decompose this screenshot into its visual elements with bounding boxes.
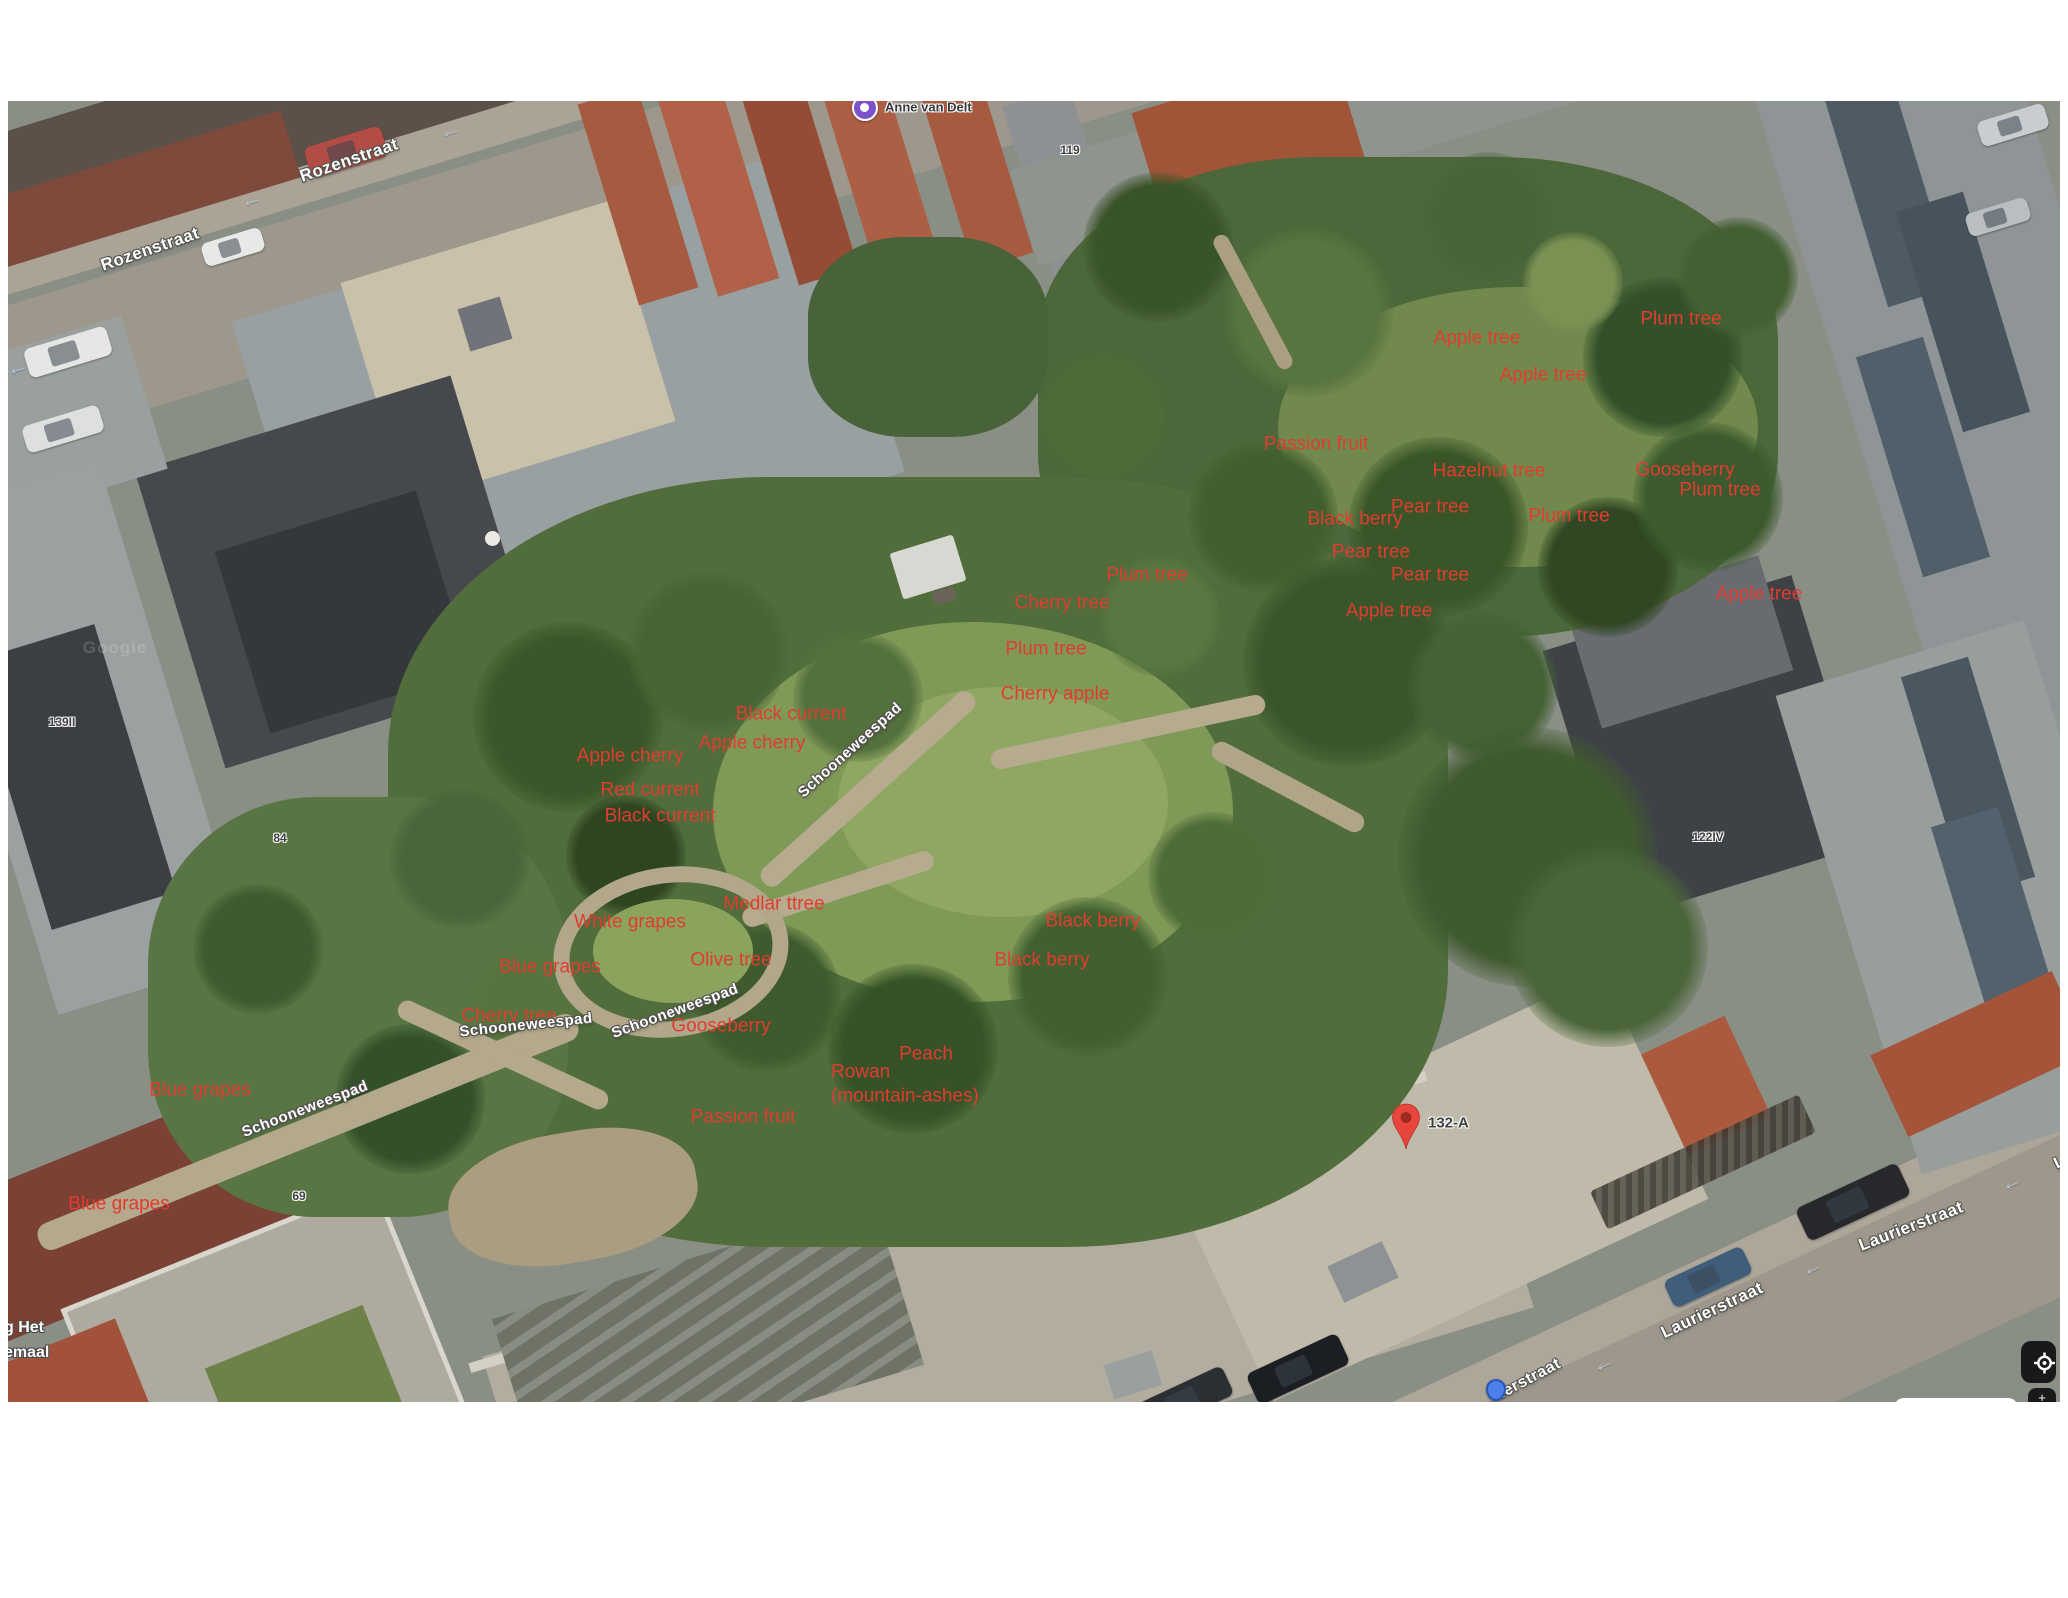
plant-label: Apple cherry (577, 747, 684, 766)
tree-canopy (1083, 172, 1233, 322)
poi-pin-glyph (860, 103, 869, 112)
plant-label: Blue grapes (68, 1195, 169, 1214)
plant-label: Passion fruit (1264, 435, 1369, 454)
plant-label: Pear tree (1391, 566, 1469, 585)
plant-label: Gooseberry (671, 1017, 770, 1036)
plant-label: Gooseberry (1635, 461, 1734, 480)
plant-label: Blue grapes (149, 1081, 250, 1100)
cut-poi-label-left: g Het emaal (8, 1315, 49, 1365)
google-watermark: Google (83, 638, 148, 658)
car-windshield (1273, 1354, 1313, 1388)
tree-canopy (1508, 847, 1708, 1047)
car-windshield (218, 237, 243, 258)
plant-label: Hazelnut tree (1432, 462, 1545, 481)
address-number-label: 84 (273, 832, 286, 844)
plant-label: Apple tree (1716, 585, 1803, 604)
plant-label: Blue grapes (499, 958, 600, 977)
my-location-button[interactable] (2021, 1341, 2056, 1383)
plant-label: Black current (736, 705, 847, 724)
plant-label: Black current (605, 807, 716, 826)
map-zoom-button-partial[interactable]: + (2028, 1388, 2056, 1402)
car-windshield (1982, 207, 2007, 228)
car-windshield (47, 340, 81, 367)
plant-label: Plum tree (1005, 640, 1086, 659)
address-number-label: 122IV (1692, 831, 1723, 843)
plant-label: Medlar ttree (723, 895, 824, 914)
tree-canopy (1148, 812, 1278, 942)
address-number-label: 69 (292, 1190, 305, 1202)
tree-canopy (193, 884, 323, 1014)
tree-canopy (1038, 352, 1168, 482)
plant-label: Apple tree (1500, 366, 1587, 385)
bottom-sheet-handle[interactable] (1894, 1398, 2018, 1402)
plant-label: Red current (600, 781, 699, 800)
plant-label: Black berry (1045, 912, 1140, 931)
satellite-map-canvas[interactable]: Google g Het emaal Apple treeApple treeP… (8, 101, 2060, 1402)
plant-label: Plum tree (1528, 507, 1609, 526)
plant-label: Cherry apple (1001, 685, 1110, 704)
plant-label: White grapes (574, 913, 686, 932)
satellite-dish (485, 531, 500, 546)
plant-label: Olive tree (690, 951, 771, 970)
cut-poi-line-2: emaal (8, 1340, 49, 1365)
plant-label: Pear tree (1332, 543, 1410, 562)
plant-label: Apple tree (1434, 329, 1521, 348)
tree-canopy (390, 789, 530, 929)
plant-label: Rowan (831, 1063, 890, 1082)
plant-label: Peach (899, 1045, 953, 1064)
maps-app-window: Google g Het emaal Apple treeApple treeP… (0, 0, 2068, 1598)
car-windshield (1687, 1264, 1722, 1294)
plant-label: Plum tree (1106, 566, 1187, 585)
plant-label: Plum tree (1679, 481, 1760, 500)
plant-label: Plum tree (1640, 310, 1721, 329)
plus-icon: + (2038, 1390, 2046, 1403)
address-number-label: 139II (49, 716, 76, 728)
plant-label: Black berry (1307, 510, 1402, 529)
plant-label: Apple tree (1346, 602, 1433, 621)
car-windshield (44, 418, 75, 443)
plant-label: (mountain-ashes) (831, 1087, 979, 1106)
plant-label: Pear tree (1391, 498, 1469, 517)
car-windshield (1996, 115, 2024, 138)
address-number-label: 119 (1060, 144, 1079, 156)
cut-poi-line-1: g Het (8, 1315, 49, 1340)
tree-canopy (1523, 232, 1623, 332)
location-pin-icon[interactable] (1391, 1103, 1421, 1150)
plant-label: Cherry tree (1014, 594, 1109, 613)
garden-area (808, 237, 1048, 437)
plant-label: Passion fruit (691, 1108, 796, 1127)
my-location-icon (2027, 1342, 2050, 1384)
plant-label: Black berry (994, 951, 1089, 970)
plant-label: Apple cherry (699, 734, 806, 753)
poi-label[interactable]: Anne van Delt (885, 101, 972, 115)
address-number-label: 132-A (1428, 1116, 1469, 1131)
